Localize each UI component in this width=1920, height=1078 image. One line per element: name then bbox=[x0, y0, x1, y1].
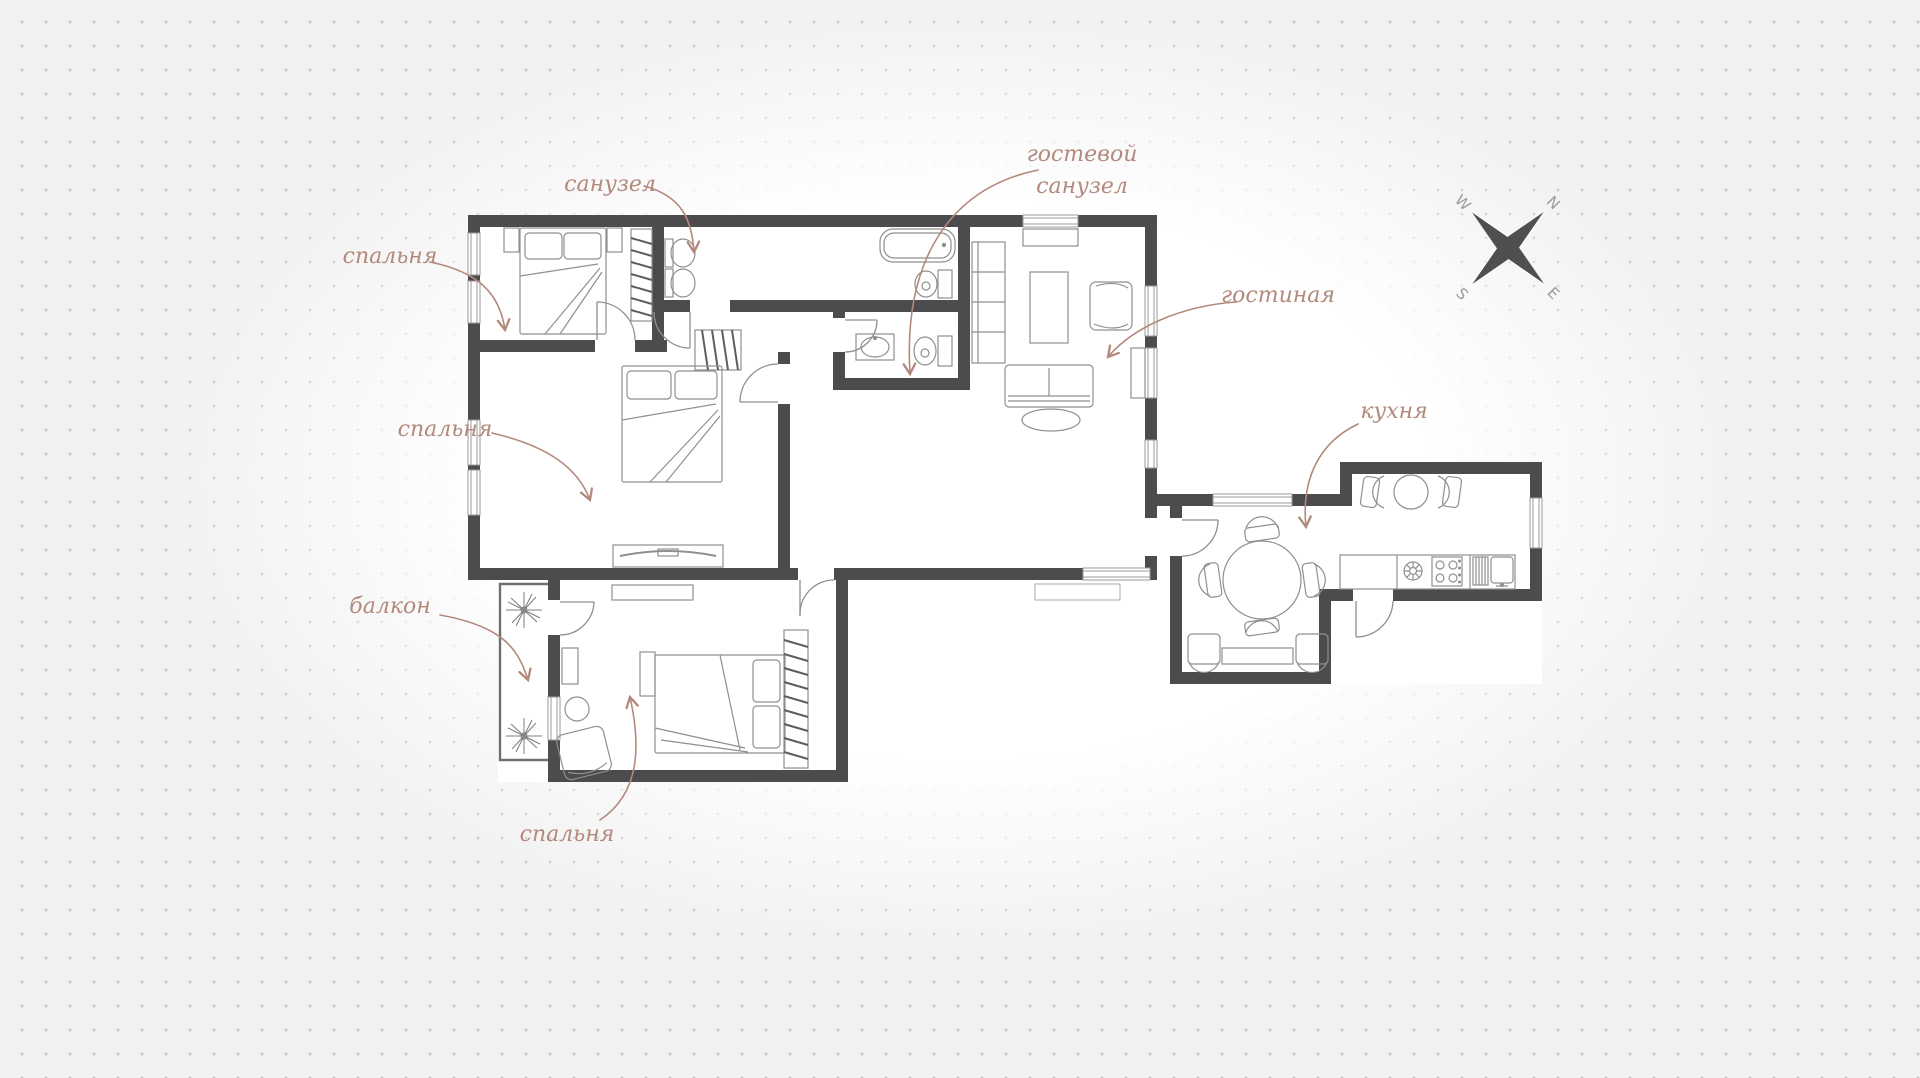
compass-n: N bbox=[1543, 192, 1564, 213]
floor-plan: спальня санузел гостевой санузел гостина… bbox=[0, 0, 1920, 1078]
compass-e: E bbox=[1544, 284, 1563, 303]
compass-s: S bbox=[1452, 284, 1471, 303]
label-bedroom-1: спальня bbox=[343, 244, 438, 269]
label-bedroom-3: спальня bbox=[520, 822, 615, 847]
label-kitchen: кухня bbox=[1360, 399, 1427, 424]
label-guest-bathroom-1: гостевой bbox=[1027, 142, 1138, 167]
compass-w: W bbox=[1451, 191, 1474, 214]
label-bathroom: санузел bbox=[564, 172, 656, 197]
label-balcony: балкон bbox=[349, 594, 430, 619]
label-bedroom-2: спальня bbox=[398, 417, 493, 442]
compass-icon: N E S W bbox=[1405, 146, 1608, 349]
label-living-room: гостиная bbox=[1221, 283, 1335, 308]
label-guest-bathroom-2: санузел bbox=[1036, 174, 1128, 199]
